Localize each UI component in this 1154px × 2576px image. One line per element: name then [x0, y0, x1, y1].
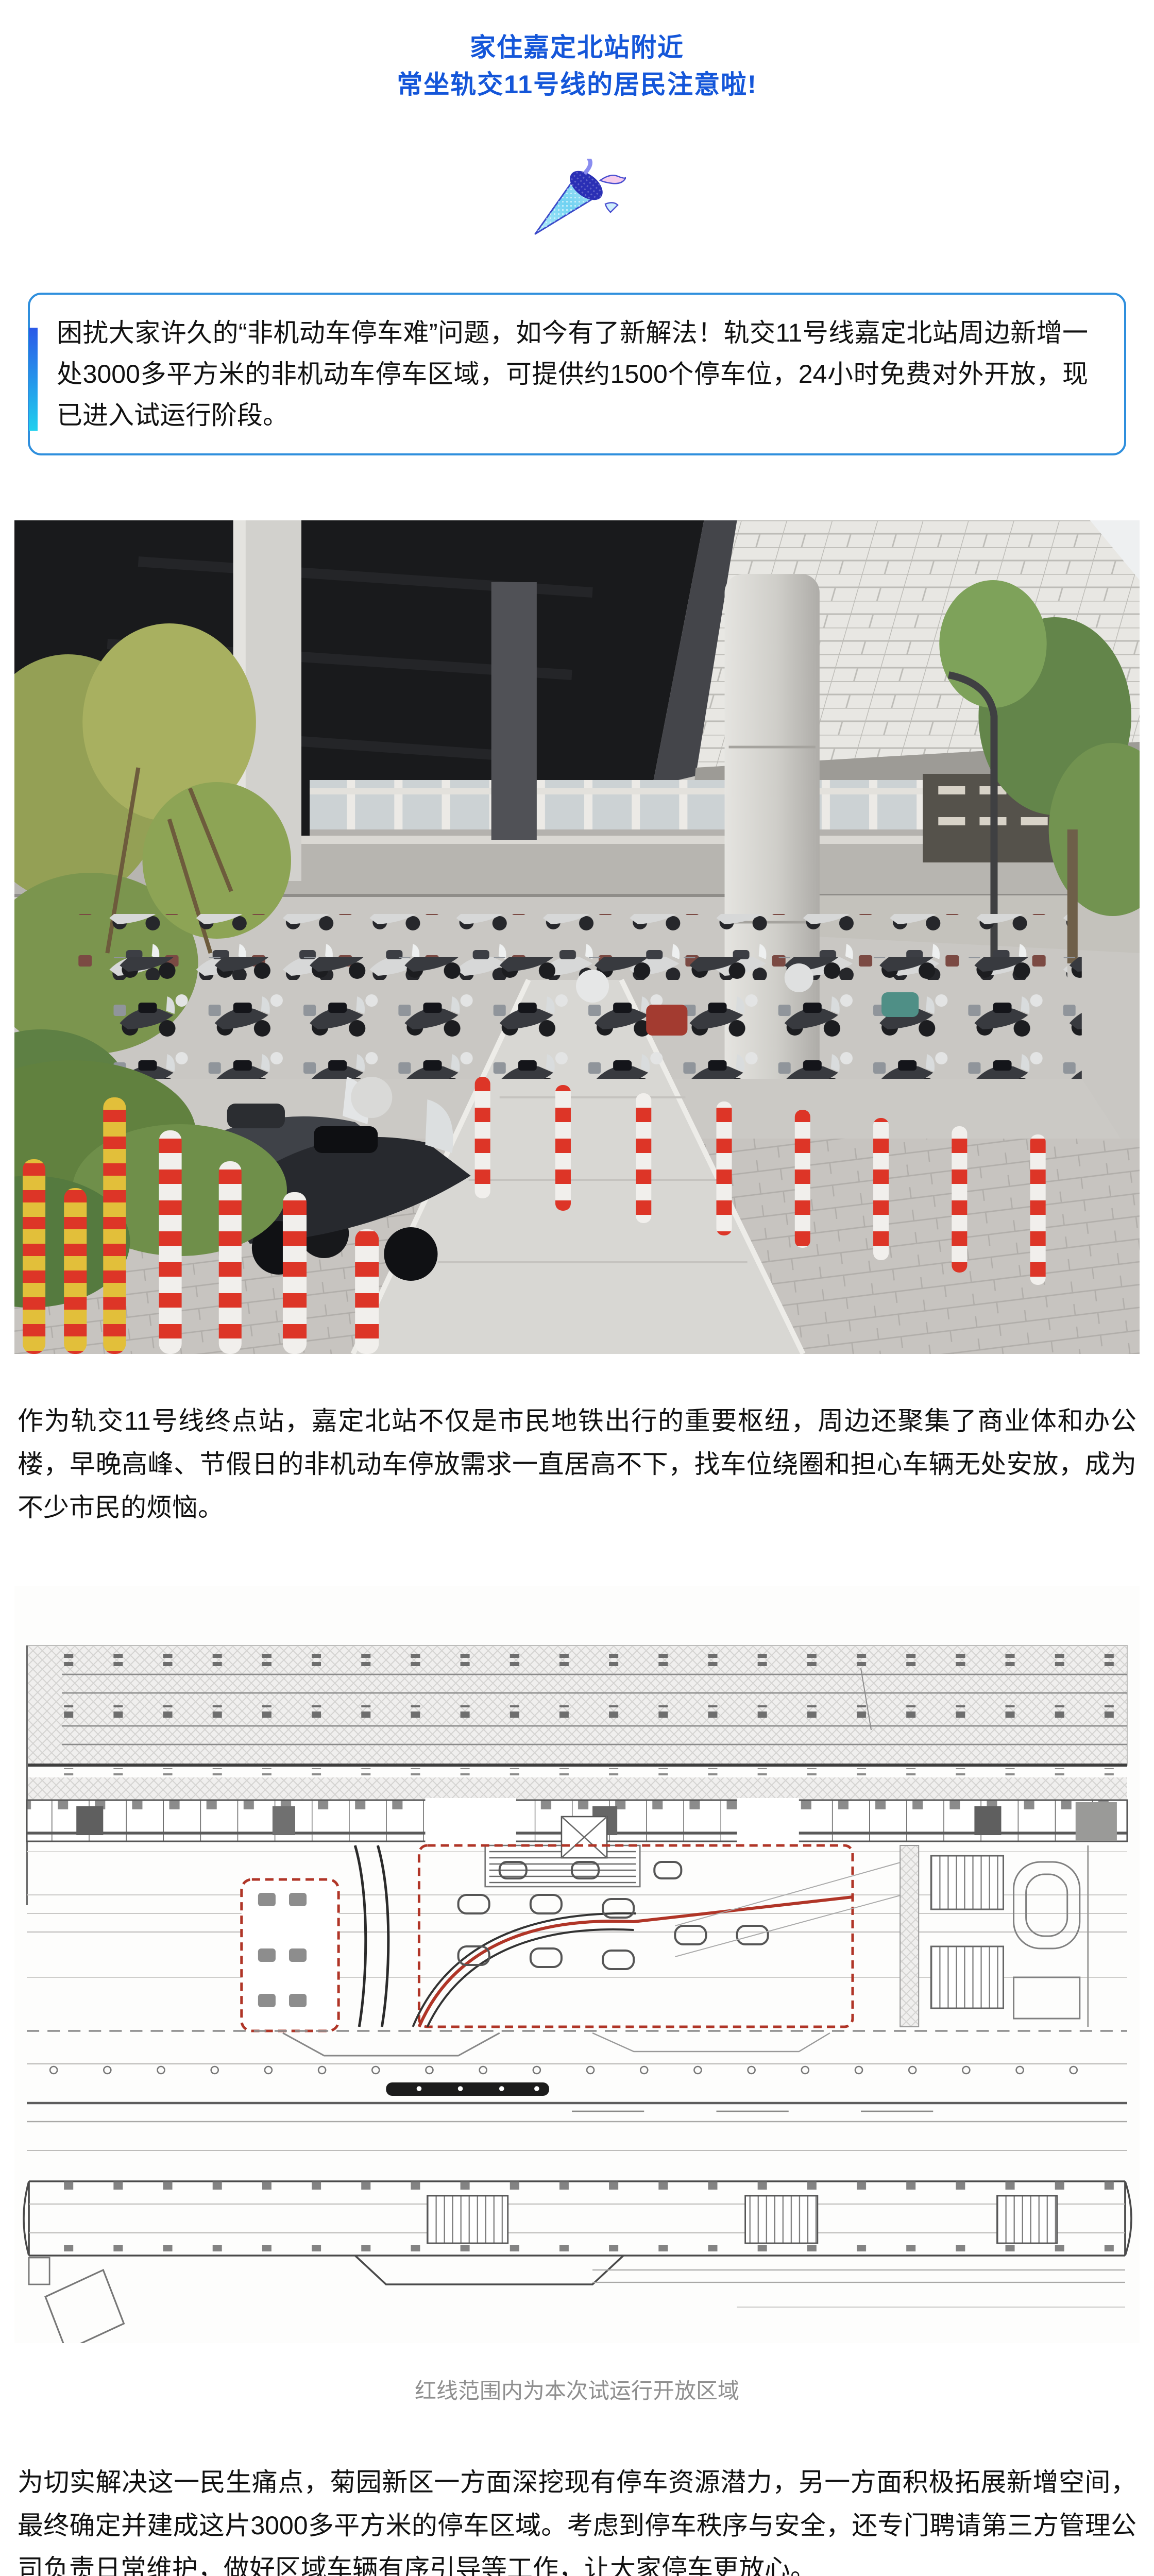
- station-viaduct-parking-graphic: [14, 520, 1140, 1354]
- article-page: 家住嘉定北站附近 常坐轨交11号线的居民注意啦! 困扰大家许久的“非机动车停车难…: [0, 0, 1154, 2576]
- station-plan-graphic: [14, 1586, 1140, 2343]
- article-header: 家住嘉定北站附近 常坐轨交11号线的居民注意啦!: [0, 0, 1154, 103]
- paragraph-1: 作为轨交11号线终点站，嘉定北站不仅是市民地铁出行的重要枢纽，周边还聚集了商业体…: [18, 1399, 1136, 1529]
- article-title-line1: 家住嘉定北站附近: [0, 29, 1154, 66]
- station-viaduct-parking-photo[interactable]: [14, 520, 1140, 1354]
- party-popper-icon: [528, 159, 626, 241]
- map-caption: 红线范围内为本次试运行开放区域: [14, 2379, 1140, 2403]
- party-popper-graphic: [528, 159, 626, 241]
- paragraph-2: 为切实解决这一民生痛点，菊园新区一方面深挖现有停车资源潜力，另一方面积极拓展新增…: [18, 2461, 1136, 2576]
- intro-highlight-box: 困扰大家许久的“非机动车停车难”问题，如今有了新解法！轨交11号线嘉定北站周边新…: [28, 293, 1126, 455]
- intro-box-text: 困扰大家许久的“非机动车停车难”问题，如今有了新解法！轨交11号线嘉定北站周边新…: [57, 312, 1088, 436]
- intro-box-accent-bar: [29, 328, 38, 431]
- station-plan-map[interactable]: 红线范围内为本次试运行开放区域: [14, 1586, 1140, 2403]
- article-title-line2: 常坐轨交11号线的居民注意啦!: [0, 66, 1154, 103]
